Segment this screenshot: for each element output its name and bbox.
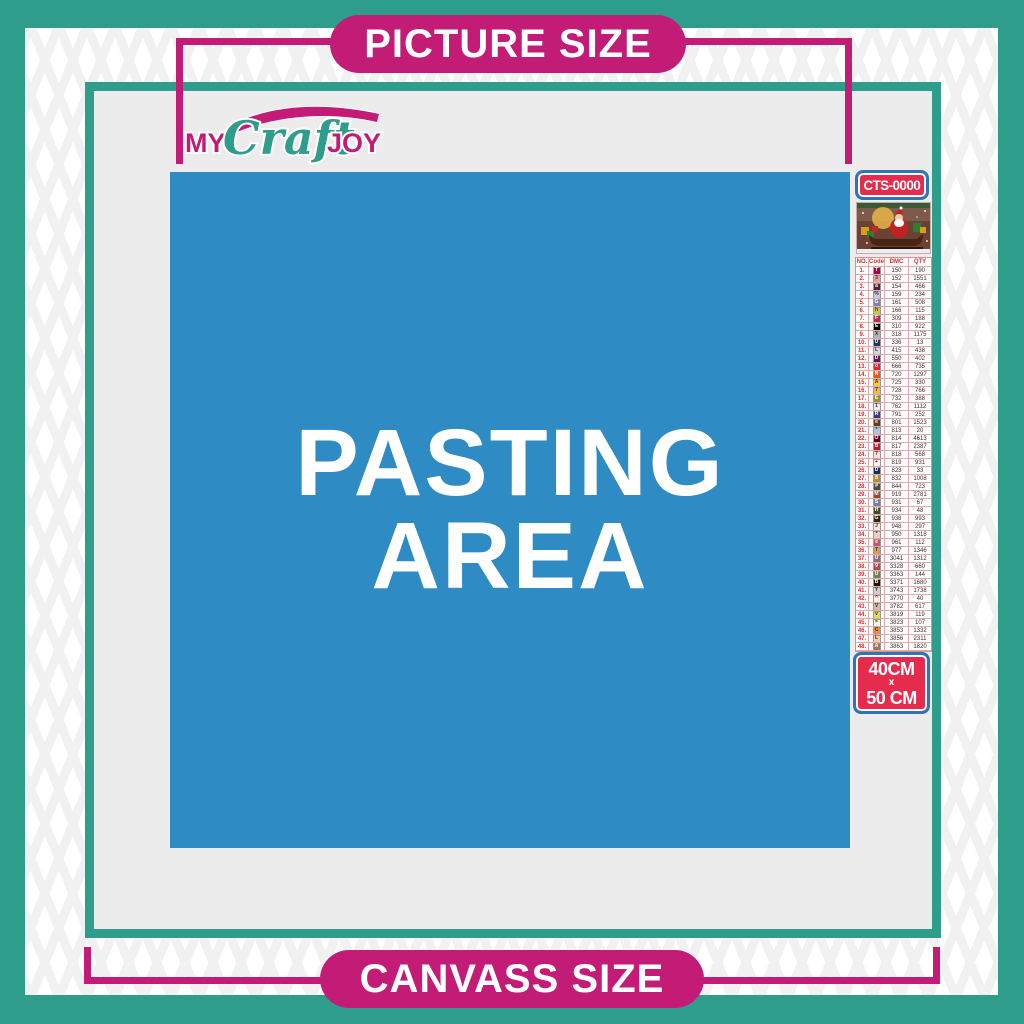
dmc-code: 938 (885, 515, 909, 523)
qty-value: 1112 (909, 403, 931, 411)
product-thumbnail (856, 202, 931, 254)
legend-row: 37.U30411312 (856, 555, 931, 563)
legend-row-number: 34. (856, 531, 869, 539)
qty-value: 48 (909, 507, 931, 515)
legend-code-cell: % (869, 291, 885, 299)
legend-row-number: 11. (856, 347, 869, 355)
legend-code-cell: C (869, 627, 885, 635)
legend-code-cell: T (869, 547, 885, 555)
legend-row-number: 26. (856, 467, 869, 475)
qty-value: 1523 (909, 419, 931, 427)
dmc-code: 3743 (885, 587, 909, 595)
code-symbol-swatch: e (873, 539, 881, 547)
code-symbol-swatch: 8 (873, 475, 881, 483)
qty-value: 993 (909, 515, 931, 523)
legend-code-cell: # (869, 483, 885, 491)
qty-value: 20 (909, 427, 931, 435)
legend-row: 11.L415438 (856, 347, 931, 355)
legend-row-number: 39. (856, 571, 869, 579)
legend-row-number: 9. (856, 331, 869, 339)
qty-value: 922 (909, 323, 931, 331)
legend-row-number: 1. (856, 267, 869, 275)
code-symbol-swatch: E (873, 395, 881, 403)
legend-row-number: 13. (856, 363, 869, 371)
code-symbol-swatch: 1 (873, 403, 881, 411)
legend-column-header: NO. (856, 258, 869, 267)
top-bracket-drop-right (845, 38, 852, 164)
legend-row-number: 14. (856, 371, 869, 379)
code-symbol-swatch: e (873, 419, 881, 427)
sku-label: CTS-0000 (864, 177, 921, 193)
picture-size-label: PICTURE SIZE (364, 22, 652, 67)
legend-code-cell: L (869, 635, 885, 643)
legend-row-number: 21. (856, 427, 869, 435)
qty-value: 67 (909, 499, 931, 507)
code-symbol-swatch: V (873, 603, 881, 611)
qty-value: 766 (909, 387, 931, 395)
legend-code-cell: e (869, 419, 885, 427)
dmc-code: 3770 (885, 595, 909, 603)
code-symbol-swatch: O (873, 435, 881, 443)
legend-code-cell: R (869, 411, 885, 419)
legend-row-number: 2. (856, 275, 869, 283)
legend-code-cell: 8 (869, 475, 885, 483)
legend-code-cell: 7 (869, 387, 885, 395)
qty-value: 40 (909, 595, 931, 603)
code-symbol-swatch: # (873, 483, 881, 491)
qty-value: 660 (909, 563, 931, 571)
code-symbol-swatch: U (873, 339, 881, 347)
code-symbol-swatch: B (873, 443, 881, 451)
legend-row-number: 24. (856, 451, 869, 459)
qty-value: 1008 (909, 475, 931, 483)
size-separator-label: x (889, 678, 895, 688)
legend-code-cell: a (869, 283, 885, 291)
legend-row-number: 22. (856, 435, 869, 443)
dmc-code: 159 (885, 291, 909, 299)
legend-row: 16.7728766 (856, 387, 931, 395)
legend-code-cell: B (869, 443, 885, 451)
legend-code-cell: 9 (869, 563, 885, 571)
dmc-code: 819 (885, 459, 909, 467)
code-symbol-swatch: % (873, 291, 881, 299)
pasting-area-label-line1: PASTING (295, 417, 724, 510)
dmc-code: 818 (885, 451, 909, 459)
legend-code-cell: M (869, 491, 885, 499)
legend-row-number: 44. (856, 611, 869, 619)
legend-code-cell: 7 (869, 451, 885, 459)
legend-code-cell: V (869, 603, 885, 611)
qty-value: 144 (909, 571, 931, 579)
pasting-area-label-line2: AREA (371, 510, 648, 603)
legend-row-number: 28. (856, 483, 869, 491)
craft-kit-template-poster: PICTURE SIZE CANVASS SIZE MY Craft JOY P… (0, 0, 1024, 1024)
legend-code-cell: H (869, 507, 885, 515)
brand-logo: MY Craft JOY (181, 98, 396, 170)
legend-row: 10.U33613 (856, 339, 931, 347)
code-symbol-swatch: = (873, 619, 881, 627)
code-symbol-swatch: ^ (873, 595, 881, 603)
legend-code-cell: X (869, 331, 885, 339)
dmc-code: 3782 (885, 603, 909, 611)
legend-column-header: QTY (909, 258, 931, 267)
dmc-code: 919 (885, 491, 909, 499)
qty-value: 13 (909, 339, 931, 347)
dmc-code: 161 (885, 299, 909, 307)
qty-value: 115 (909, 307, 931, 315)
code-symbol-swatch: D (873, 467, 881, 475)
qty-value: 1551 (909, 275, 931, 283)
qty-value: 466 (909, 283, 931, 291)
legend-code-cell: 3 (869, 275, 885, 283)
dmc-code: 3328 (885, 563, 909, 571)
legend-row: 40.B33711680 (856, 579, 931, 587)
legend-row: 4.%159234 (856, 291, 931, 299)
legend-row-number: 18. (856, 403, 869, 411)
legend-row-number: 32. (856, 515, 869, 523)
legend-row-number: 30. (856, 499, 869, 507)
logo-text-joy: JOY (327, 128, 381, 158)
bottom-bracket-line-left (84, 977, 328, 984)
code-symbol-swatch: L (873, 347, 881, 355)
legend-header-row: NO.CodeDMCQTY (856, 258, 931, 267)
code-symbol-swatch: * (873, 531, 881, 539)
legend-row: 31.H93448 (856, 507, 931, 515)
dmc-code: 3863 (885, 643, 909, 651)
legend-code-cell: S (869, 499, 885, 507)
pasting-area: PASTING AREA (170, 172, 850, 848)
dmc-legend-table: NO.CodeDMCQTY1.T1501902.315215513.a15446… (855, 257, 932, 652)
legend-row: 43.V3782617 (856, 603, 931, 611)
dmc-code: 310 (885, 323, 909, 331)
legend-row: 19.R791252 (856, 411, 931, 419)
size-badge: 40CM x 50 CM (853, 652, 930, 714)
legend-code-cell: O (869, 435, 885, 443)
legend-row-number: 27. (856, 475, 869, 483)
legend-row: 3.a154466 (856, 283, 931, 291)
dmc-code: 309 (885, 315, 909, 323)
code-symbol-swatch: F (873, 315, 881, 323)
legend-row-number: 20. (856, 419, 869, 427)
qty-value: 112 (909, 539, 931, 547)
legend-code-cell: T (869, 267, 885, 275)
qty-value: 723 (909, 483, 931, 491)
dmc-code: 728 (885, 387, 909, 395)
dmc-code: 3853 (885, 627, 909, 635)
legend-row: 44.v3819119 (856, 611, 931, 619)
legend-row-number: 45. (856, 619, 869, 627)
dmc-code: 3041 (885, 555, 909, 563)
legend-row: 21.*81320 (856, 427, 931, 435)
qty-value: 1346 (909, 547, 931, 555)
legend-code-cell: D (869, 467, 885, 475)
code-symbol-swatch: A (873, 379, 881, 387)
code-symbol-swatch: H (873, 507, 881, 515)
dmc-code: 961 (885, 539, 909, 547)
top-bracket-drop-left (176, 38, 183, 164)
sku-badge: CTS-0000 (855, 170, 929, 200)
legend-row: 32.G938993 (856, 515, 931, 523)
santa-sleigh-scene-icon (857, 203, 930, 253)
code-symbol-swatch: S (873, 499, 881, 507)
legend-row-number: 4. (856, 291, 869, 299)
code-symbol-swatch: E (873, 323, 881, 331)
code-symbol-swatch: 9 (873, 563, 881, 571)
code-symbol-swatch: A (873, 643, 881, 651)
code-symbol-swatch: D (873, 355, 881, 363)
legend-row: 24.7818568 (856, 451, 931, 459)
dmc-code: 844 (885, 483, 909, 491)
legend-code-cell: U (869, 571, 885, 579)
legend-row-number: 16. (856, 387, 869, 395)
legend-code-cell: v (869, 611, 885, 619)
code-symbol-swatch: U (873, 555, 881, 563)
legend-code-cell: G (869, 299, 885, 307)
code-symbol-swatch: T (873, 547, 881, 555)
qty-value: 33 (909, 467, 931, 475)
legend-code-cell: = (869, 619, 885, 627)
legend-code-cell: * (869, 531, 885, 539)
dmc-code: 817 (885, 443, 909, 451)
legend-code-cell: D (869, 355, 885, 363)
bottom-bracket-line-right (696, 977, 940, 984)
qty-value: 508 (909, 299, 931, 307)
legend-row: 15.A725330 (856, 379, 931, 387)
dmc-code: 934 (885, 507, 909, 515)
code-symbol-swatch: 7 (873, 451, 881, 459)
qty-value: 1175 (909, 331, 931, 339)
dmc-code: 3363 (885, 571, 909, 579)
qty-value: 107 (909, 619, 931, 627)
legend-row: 34.*9501318 (856, 531, 931, 539)
legend-code-cell: B (869, 579, 885, 587)
legend-row: 47.L38562311 (856, 635, 931, 643)
dmc-code: 3371 (885, 579, 909, 587)
legend-row-number: 23. (856, 443, 869, 451)
qty-value: 617 (909, 603, 931, 611)
legend-code-cell: U (869, 339, 885, 347)
legend-row: 35.e961112 (856, 539, 931, 547)
code-symbol-swatch: M (873, 491, 881, 499)
legend-row-number: 48. (856, 643, 869, 651)
legend-row-number: 42. (856, 595, 869, 603)
legend-code-cell: * (869, 427, 885, 435)
qty-value: 297 (909, 523, 931, 531)
legend-row-number: 7. (856, 315, 869, 323)
code-symbol-swatch: * (873, 427, 881, 435)
qty-value: 1318 (909, 531, 931, 539)
dmc-code: 732 (885, 395, 909, 403)
dmc-code: 3856 (885, 635, 909, 643)
legend-code-cell: + (869, 459, 885, 467)
code-symbol-swatch: X (873, 331, 881, 339)
code-symbol-swatch: N (873, 371, 881, 379)
legend-row: 26.D82333 (856, 467, 931, 475)
legend-row-number: 33. (856, 523, 869, 531)
legend-row: 48.A38631820 (856, 643, 931, 651)
legend-row: 18.17621112 (856, 403, 931, 411)
legend-row: 1.T150190 (856, 267, 931, 275)
code-symbol-swatch: v (873, 611, 881, 619)
legend-row: 17.E732388 (856, 395, 931, 403)
legend-row-number: 47. (856, 635, 869, 643)
legend-row: 14.N7201297 (856, 371, 931, 379)
qty-value: 2387 (909, 443, 931, 451)
code-symbol-swatch: R (873, 411, 881, 419)
qty-value: 1820 (909, 643, 931, 651)
legend-row-number: 10. (856, 339, 869, 347)
legend-row: 27.88321008 (856, 475, 931, 483)
qty-value: 402 (909, 355, 931, 363)
legend-row-number: 36. (856, 547, 869, 555)
code-symbol-swatch: 7 (873, 387, 881, 395)
qty-value: 2781 (909, 491, 931, 499)
code-symbol-swatch: + (873, 459, 881, 467)
legend-code-cell: e (869, 539, 885, 547)
qty-value: 188 (909, 315, 931, 323)
legend-row: 20.e8011523 (856, 419, 931, 427)
legend-code-cell: o (869, 363, 885, 371)
dmc-code: 832 (885, 475, 909, 483)
legend-row: 2.31521551 (856, 275, 931, 283)
code-symbol-swatch: a (873, 283, 881, 291)
size-height-label: 50 CM (866, 689, 917, 707)
dmc-code: 166 (885, 307, 909, 315)
qty-value: 568 (909, 451, 931, 459)
code-symbol-swatch: L (873, 635, 881, 643)
code-symbol-swatch: T (873, 267, 881, 275)
legend-row: 6.h166115 (856, 307, 931, 315)
picture-size-banner: PICTURE SIZE (330, 15, 686, 73)
dmc-code: 823 (885, 467, 909, 475)
dmc-code: 152 (885, 275, 909, 283)
legend-row-number: 25. (856, 459, 869, 467)
legend-row-number: 3. (856, 283, 869, 291)
legend-code-cell: J (869, 523, 885, 531)
qty-value: 388 (909, 395, 931, 403)
legend-row: 33.J948297 (856, 523, 931, 531)
legend-code-cell: 1 (869, 403, 885, 411)
qty-value: 252 (909, 411, 931, 419)
dmc-code: 3819 (885, 611, 909, 619)
legend-row-number: 19. (856, 411, 869, 419)
legend-code-cell: A (869, 379, 885, 387)
legend-row: 8.E310922 (856, 323, 931, 331)
brand-logo-art: MY Craft JOY (181, 98, 396, 170)
legend-row: 12.D550402 (856, 355, 931, 363)
legend-row: 5.G161508 (856, 299, 931, 307)
dmc-code: 154 (885, 283, 909, 291)
code-symbol-swatch: U (873, 571, 881, 579)
dmc-code: 950 (885, 531, 909, 539)
legend-row: 36.T9771346 (856, 547, 931, 555)
legend-code-cell: U (869, 555, 885, 563)
legend-row-number: 31. (856, 507, 869, 515)
legend-code-cell: h (869, 307, 885, 315)
legend-row-number: 15. (856, 379, 869, 387)
legend-row: 13.o666735 (856, 363, 931, 371)
size-width-label: 40CM (868, 660, 914, 678)
legend-row-number: 8. (856, 323, 869, 331)
qty-value: 1312 (909, 555, 931, 563)
top-bracket-line-left (176, 38, 338, 45)
dmc-code: 813 (885, 427, 909, 435)
code-symbol-swatch: C (873, 627, 881, 635)
dmc-code: 550 (885, 355, 909, 363)
dmc-code: 336 (885, 339, 909, 347)
bottom-bracket-rise-right (933, 947, 940, 984)
legend-row-number: 5. (856, 299, 869, 307)
dmc-code: 3823 (885, 619, 909, 627)
dmc-code: 720 (885, 371, 909, 379)
dmc-code: 762 (885, 403, 909, 411)
legend-row-number: 38. (856, 563, 869, 571)
qty-value: 234 (909, 291, 931, 299)
code-symbol-swatch: G (873, 299, 881, 307)
dmc-code: 725 (885, 379, 909, 387)
legend-code-cell: G (869, 515, 885, 523)
dmc-code: 801 (885, 419, 909, 427)
dmc-code: 666 (885, 363, 909, 371)
qty-value: 1680 (909, 579, 931, 587)
code-symbol-swatch: J (873, 523, 881, 531)
legend-row: 23.B8172387 (856, 443, 931, 451)
dmc-code: 814 (885, 435, 909, 443)
code-symbol-swatch: 3 (873, 275, 881, 283)
qty-value: 330 (909, 379, 931, 387)
legend-row-number: 29. (856, 491, 869, 499)
qty-value: 1738 (909, 587, 931, 595)
logo-text-my: MY (185, 128, 226, 158)
legend-code-cell: L (869, 347, 885, 355)
legend-row: 45.=3823107 (856, 619, 931, 627)
legend-row-number: 35. (856, 539, 869, 547)
qty-value: 119 (909, 611, 931, 619)
legend-row-number: 43. (856, 603, 869, 611)
code-symbol-swatch: Y (873, 587, 881, 595)
legend-row: 42.^377040 (856, 595, 931, 603)
top-bracket-line-right (678, 38, 852, 45)
code-symbol-swatch: B (873, 579, 881, 587)
legend-row: 46.C38531332 (856, 627, 931, 635)
legend-code-cell: ^ (869, 595, 885, 603)
qty-value: 190 (909, 267, 931, 275)
dmc-code: 948 (885, 523, 909, 531)
bottom-bracket-rise-left (84, 947, 91, 984)
legend-row: 22.O8144613 (856, 435, 931, 443)
legend-row-number: 12. (856, 355, 869, 363)
legend-row-number: 41. (856, 587, 869, 595)
legend-row: 9.X3181175 (856, 331, 931, 339)
dmc-code: 415 (885, 347, 909, 355)
legend-code-cell: F (869, 315, 885, 323)
qty-value: 4613 (909, 435, 931, 443)
legend-row: 30.S93167 (856, 499, 931, 507)
qty-value: 1332 (909, 627, 931, 635)
dmc-code: 977 (885, 547, 909, 555)
legend-code-cell: E (869, 323, 885, 331)
qty-value: 931 (909, 459, 931, 467)
code-symbol-swatch: h (873, 307, 881, 315)
dmc-code: 791 (885, 411, 909, 419)
legend-row: 29.M9192781 (856, 491, 931, 499)
qty-value: 735 (909, 363, 931, 371)
legend-row: 38.93328660 (856, 563, 931, 571)
qty-value: 1297 (909, 371, 931, 379)
legend-code-cell: N (869, 371, 885, 379)
legend-column-header: Code (869, 258, 885, 267)
legend-row-number: 46. (856, 627, 869, 635)
